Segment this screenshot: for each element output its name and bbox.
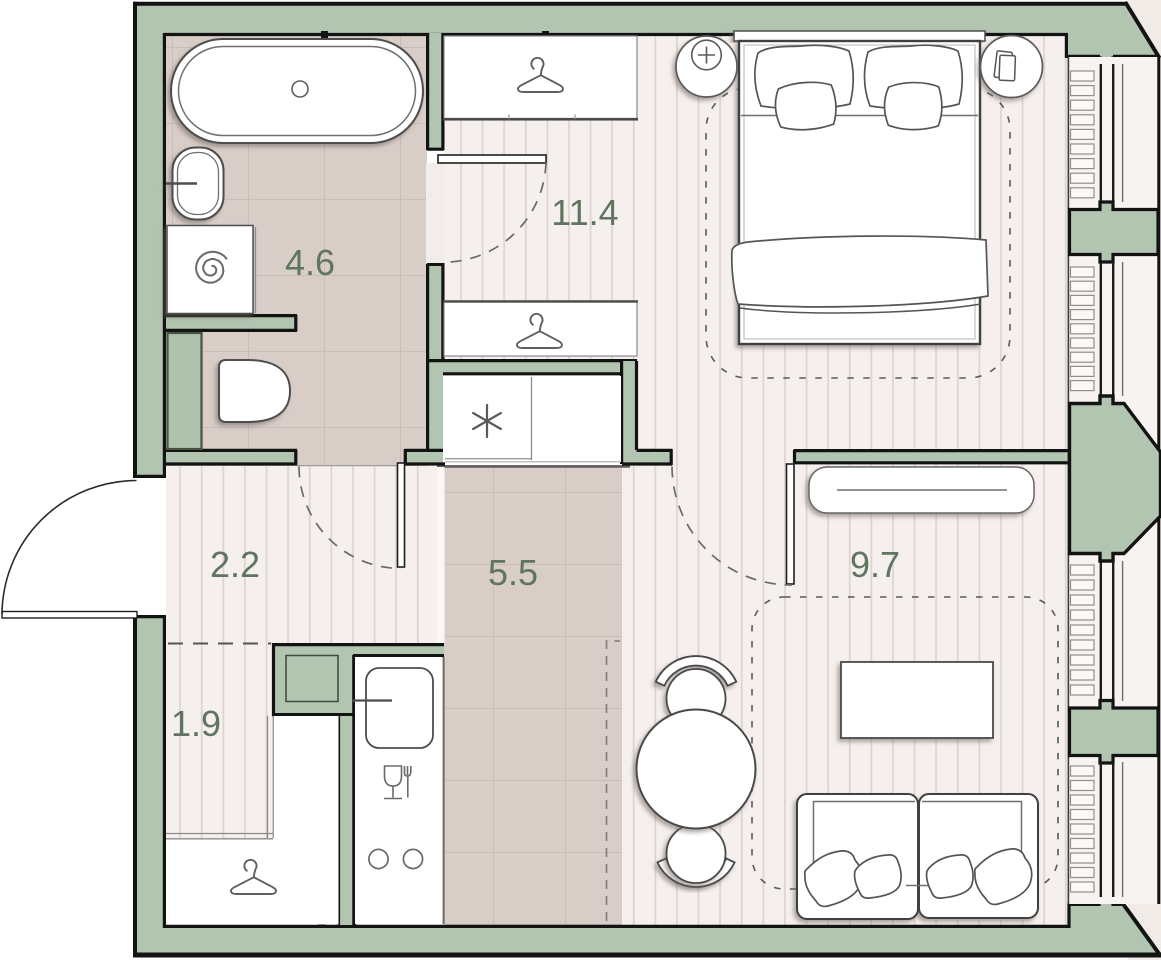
svg-text:2.2: 2.2 <box>210 544 260 585</box>
svg-text:4.6: 4.6 <box>285 242 335 283</box>
svg-text:11.4: 11.4 <box>551 192 618 233</box>
svg-text:9.7: 9.7 <box>850 544 900 585</box>
svg-text:1.9: 1.9 <box>171 703 221 744</box>
svg-text:5.5: 5.5 <box>488 552 538 593</box>
